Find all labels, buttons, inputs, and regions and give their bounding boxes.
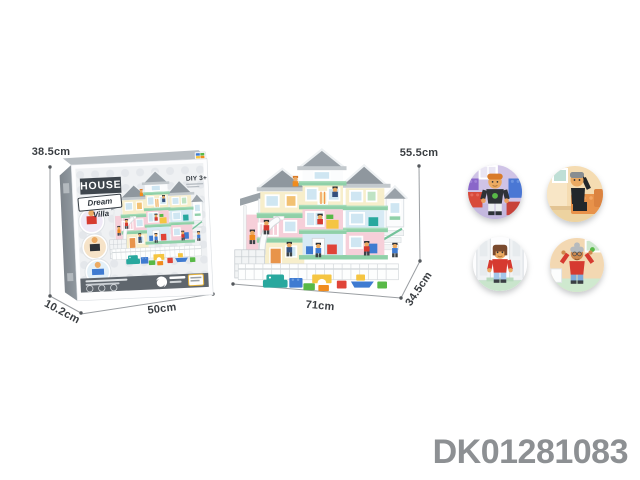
- boy-figure-icon: [468, 165, 522, 219]
- figure-photo-boy: [468, 165, 522, 219]
- assembled-villa-photo: [233, 144, 409, 294]
- brand-sticker: [195, 152, 206, 159]
- product-box: HOUSE Dream Villa DIY 3+: [57, 147, 220, 306]
- product-code: DK01281083: [433, 433, 628, 472]
- age-grade-label: DIY 3+: [186, 175, 207, 183]
- figure-photo-father: [547, 166, 603, 222]
- figure-photo-grandmother: [550, 238, 604, 292]
- villa-width-label: 71cm: [298, 298, 343, 314]
- product-sheet: 38.5cm 10.2cm 50cm 55.5cm 71cm 34.5cm: [0, 0, 640, 480]
- figure-photo-mother: [473, 237, 527, 291]
- box-width-label: 50cm: [139, 300, 184, 317]
- box-title: HOUSE: [80, 177, 122, 195]
- mother-figure-icon: [473, 237, 527, 291]
- grandmother-figure-icon: [550, 238, 604, 292]
- father-figure-icon: [547, 166, 603, 222]
